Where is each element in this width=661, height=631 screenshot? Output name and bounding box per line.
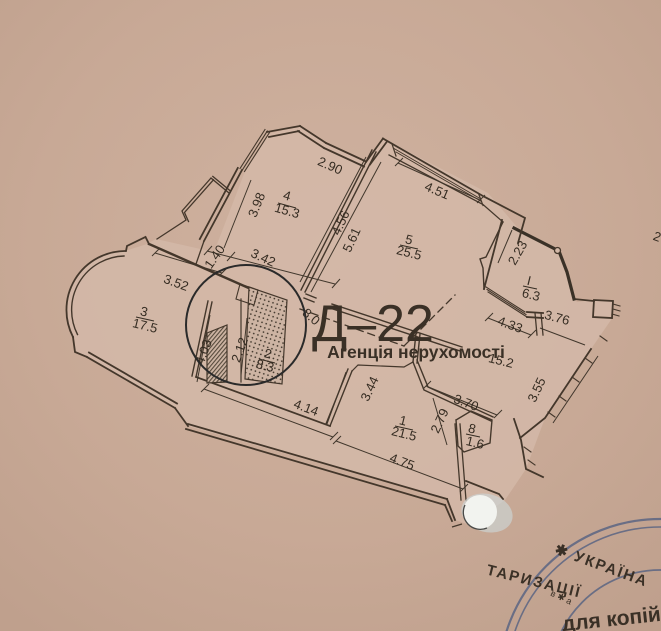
- svg-text:Агенція нерухомості: Агенція нерухомості: [327, 342, 505, 362]
